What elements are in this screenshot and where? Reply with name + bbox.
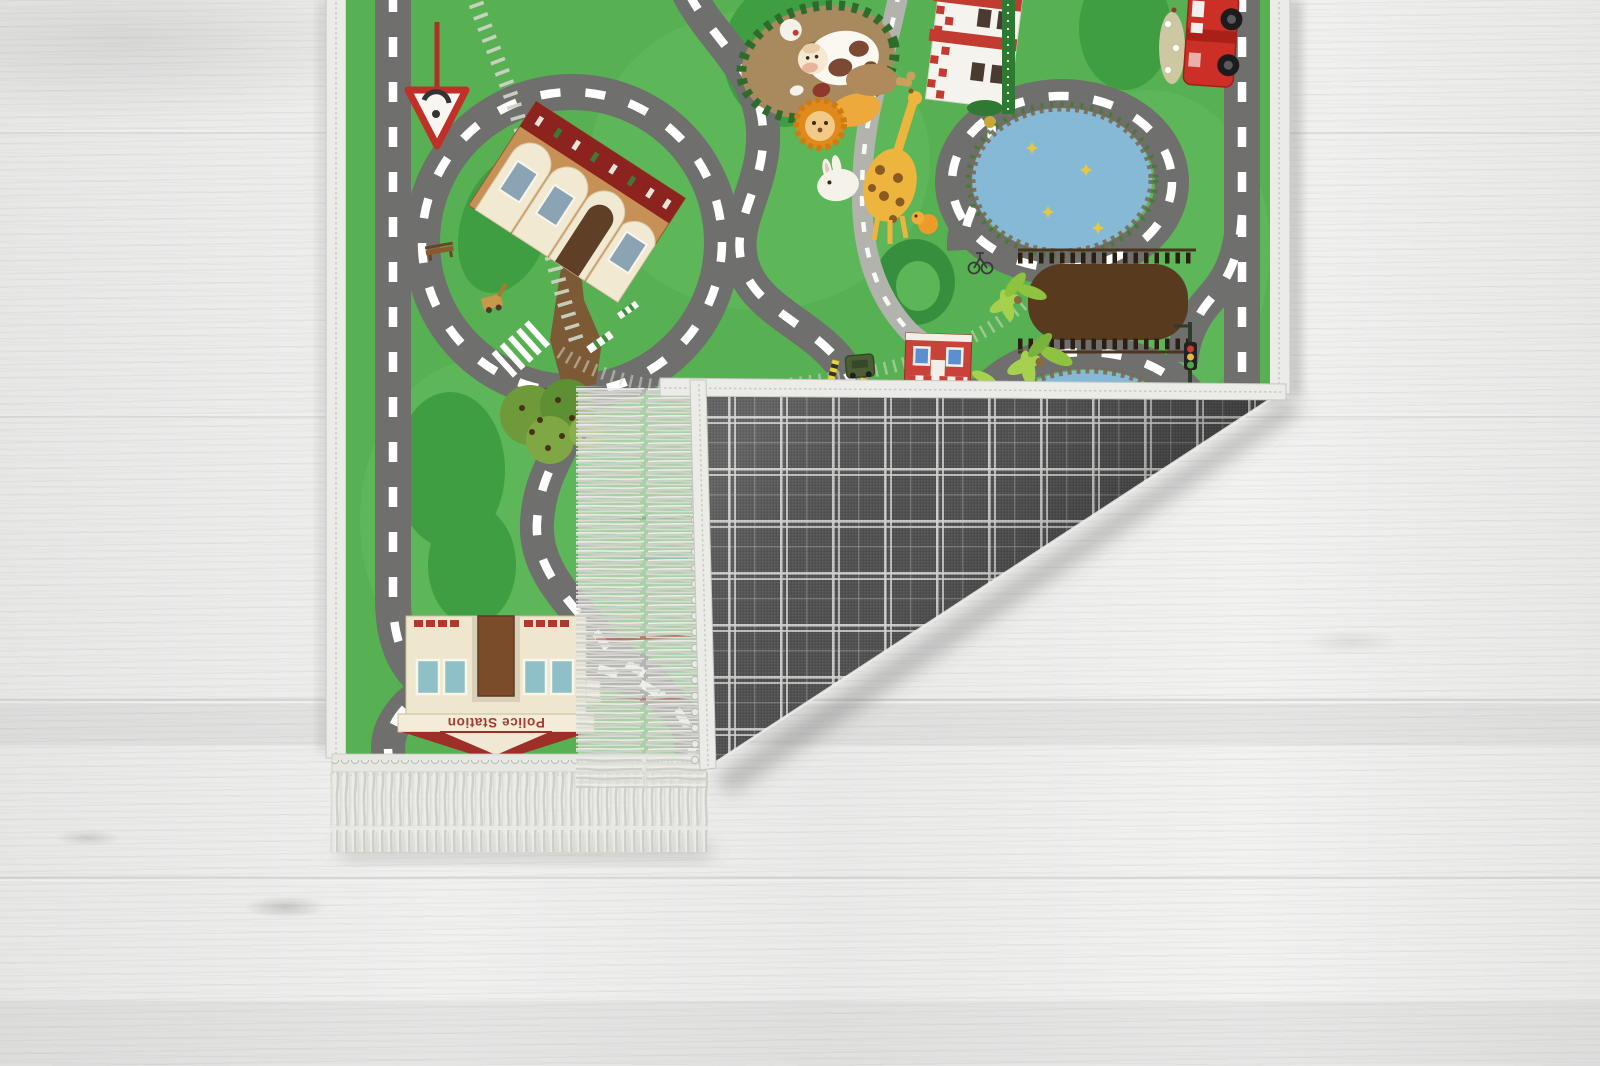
product-photo: Police Station — [0, 0, 1600, 1066]
police-station-sign: Police Station — [447, 715, 545, 730]
folded-corner — [576, 378, 1286, 788]
rug-binding-right — [1268, 0, 1290, 394]
rug-illustration: Police Station — [0, 0, 1600, 1066]
rug-binding-left — [326, 0, 346, 758]
army-jeep — [845, 354, 875, 379]
fold-fringe — [576, 386, 706, 788]
plaid-back — [702, 388, 1280, 766]
